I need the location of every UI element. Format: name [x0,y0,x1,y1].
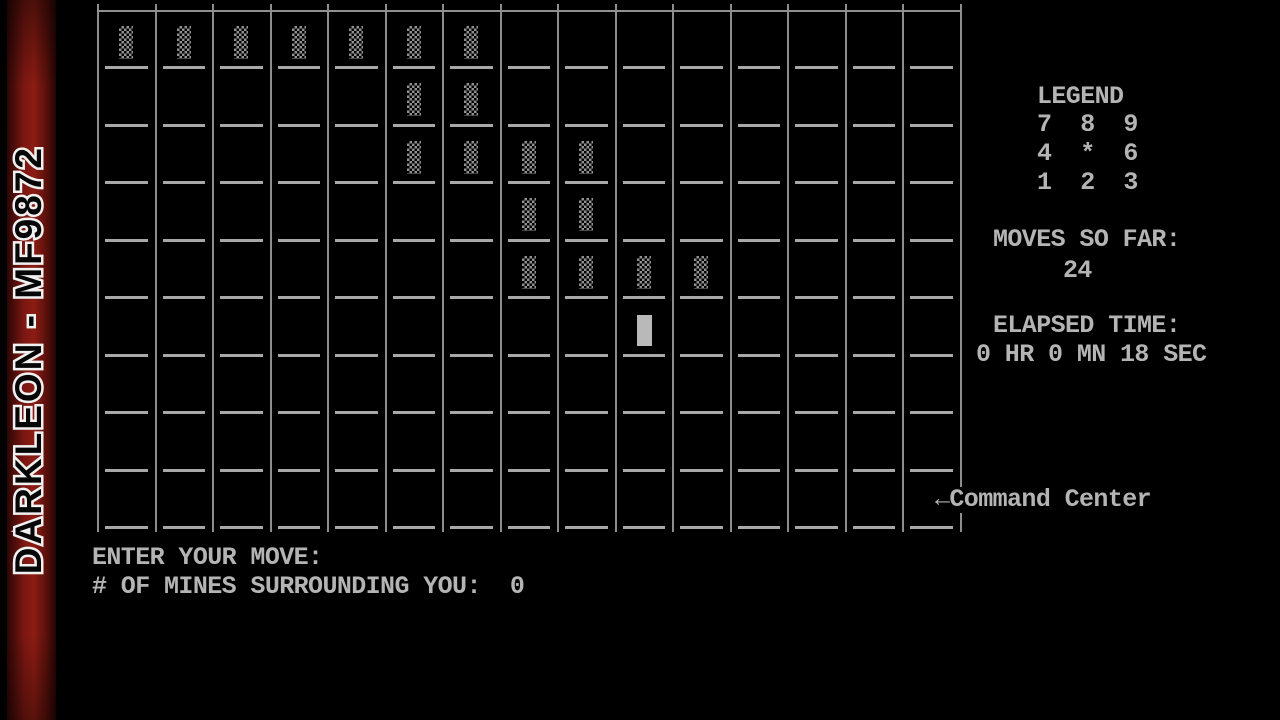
grid-line-dash [450,239,493,242]
wall-block [407,26,421,59]
legend-row-123: 1 2 3 [1037,170,1138,196]
grid-line-dash [163,411,206,414]
legend-row-789: 7 8 9 [1037,112,1138,138]
grid-line-top [97,10,962,12]
grid-line-vertical [500,4,502,532]
grid-line-dash [105,469,148,472]
watermark: DARKLEON - MF9872 [0,0,57,720]
grid-line-dash [795,66,838,69]
grid-line-dash [163,124,206,127]
grid-line-dash [450,296,493,299]
grid-line-dash [738,181,781,184]
grid-line-dash [910,469,953,472]
grid-line-dash [565,411,608,414]
mines-label: # OF MINES SURROUNDING YOU: [92,572,481,601]
wall-block [407,83,421,116]
grid-line-dash [795,526,838,529]
grid-line-dash [278,66,321,69]
grid-line-dash [853,124,896,127]
grid-line-dash [680,296,723,299]
grid-line-dash [163,526,206,529]
grid-line-dash [450,411,493,414]
grid-line-dash [565,124,608,127]
grid-line-dash [795,354,838,357]
grid-line-dash [450,354,493,357]
grid-line-dash [565,354,608,357]
wall-block [579,198,593,231]
wall-block [637,256,651,289]
grid-line-dash [163,181,206,184]
grid-line-dash [105,181,148,184]
grid-line-dash [278,411,321,414]
grid-line-dash [795,296,838,299]
grid-line-dash [278,181,321,184]
mines-value: 0 [510,572,524,601]
wall-block [464,141,478,174]
grid-line-dash [795,469,838,472]
wall-block [292,26,306,59]
grid-line-dash [508,66,551,69]
grid-line-vertical [442,4,444,532]
grid-line-dash [393,181,436,184]
wall-block [407,141,421,174]
grid-line-dash [163,354,206,357]
grid-line-dash [853,66,896,69]
grid-line-dash [623,239,666,242]
grid-line-dash [795,124,838,127]
wall-block [177,26,191,59]
grid-line-dash [910,66,953,69]
grid-line-dash [393,469,436,472]
grid-line-vertical [902,4,904,532]
grid-line-dash [450,469,493,472]
grid-line-vertical [385,4,387,532]
grid-line-dash [680,411,723,414]
grid-line-dash [105,66,148,69]
grid-line-dash [163,239,206,242]
legend-title: LEGEND [1037,84,1123,110]
grid-line-vertical [845,4,847,532]
grid-line-dash [853,239,896,242]
grid-line-dash [335,354,378,357]
grid-line-dash [738,239,781,242]
moves-value: 24 [1063,258,1092,284]
grid-line-dash [853,411,896,414]
grid-line-dash [508,411,551,414]
mines-readout: # OF MINES SURROUNDING YOU:0 [92,574,524,600]
grid-line-dash [623,526,666,529]
grid-line-dash [508,526,551,529]
grid-line-dash [220,124,263,127]
player-block [637,315,652,346]
grid-line-dash [105,239,148,242]
grid-line-dash [738,66,781,69]
wall-block [119,26,133,59]
grid-line-vertical [615,4,617,532]
grid-line-dash [738,469,781,472]
grid-line-dash [335,239,378,242]
grid-line-dash [565,66,608,69]
grid-line-dash [220,181,263,184]
legend-row-4s6: 4 * 6 [1037,141,1138,167]
elapsed-label: ELAPSED TIME: [993,313,1180,339]
grid-line-dash [623,354,666,357]
wall-block [522,141,536,174]
grid-line-dash [105,296,148,299]
grid-line-dash [853,181,896,184]
grid-line-dash [565,469,608,472]
grid-line-dash [623,296,666,299]
wall-block [522,256,536,289]
grid-line-dash [220,239,263,242]
grid-line-dash [278,124,321,127]
wall-block [579,141,593,174]
grid-line-dash [278,469,321,472]
grid-line-vertical [97,4,99,532]
grid-line-dash [623,411,666,414]
grid-line-vertical [212,4,214,532]
grid-line-vertical [557,4,559,532]
grid-line-dash [393,124,436,127]
grid-line-dash [450,124,493,127]
grid-line-vertical [672,4,674,532]
grid-line-dash [738,526,781,529]
game-screen: DARKLEON - MF9872 LEGEND 7 8 9 4 * 6 1 2… [0,0,1280,720]
wall-block [349,26,363,59]
command-center-label: ←Command Center [933,487,1153,513]
wall-block [234,26,248,59]
grid-line-dash [910,239,953,242]
grid-line-dash [335,124,378,127]
grid-line-dash [623,66,666,69]
wall-block [522,198,536,231]
grid-line-dash [910,411,953,414]
channel-strip: DARKLEON - MF9872 [0,0,57,720]
grid-line-dash [335,66,378,69]
grid-line-dash [278,296,321,299]
grid-line-dash [565,526,608,529]
grid-line-dash [910,526,953,529]
grid-line-dash [393,296,436,299]
grid-line-dash [220,469,263,472]
grid-line-dash [220,296,263,299]
grid-line-dash [795,411,838,414]
grid-line-dash [220,526,263,529]
grid-line-dash [335,181,378,184]
grid-line-dash [910,354,953,357]
grid-line-vertical [155,4,157,532]
grid-line-dash [335,411,378,414]
grid-line-dash [278,239,321,242]
grid-line-dash [910,181,953,184]
grid-line-dash [393,66,436,69]
grid-line-dash [795,239,838,242]
grid-line-dash [105,526,148,529]
grid-line-dash [450,181,493,184]
grid-line-dash [508,469,551,472]
grid-line-dash [680,239,723,242]
grid-line-vertical [960,4,962,532]
grid-line-dash [163,296,206,299]
grid-line-dash [910,124,953,127]
grid-line-dash [623,181,666,184]
grid-line-dash [565,239,608,242]
grid-line-dash [393,526,436,529]
grid-line-dash [910,296,953,299]
grid-line-dash [278,526,321,529]
grid-line-dash [508,124,551,127]
grid-line-dash [853,469,896,472]
grid-line-dash [680,354,723,357]
grid-line-dash [393,411,436,414]
grid-line-dash [508,354,551,357]
grid-line-dash [508,181,551,184]
grid-line-dash [680,181,723,184]
wall-block [579,256,593,289]
grid-line-dash [853,296,896,299]
grid-line-dash [220,411,263,414]
grid-line-dash [853,526,896,529]
grid-line-vertical [787,4,789,532]
grid-line-dash [335,296,378,299]
grid-line-dash [795,181,838,184]
grid-line-dash [738,124,781,127]
grid-line-dash [393,354,436,357]
grid-line-dash [163,469,206,472]
grid-line-dash [508,239,551,242]
elapsed-value: 0 HR 0 MN 18 SEC [976,342,1206,368]
grid-line-dash [335,469,378,472]
grid-line-vertical [327,4,329,532]
grid-line-dash [278,354,321,357]
grid-line-dash [738,411,781,414]
grid-line-dash [220,354,263,357]
grid-line-dash [680,526,723,529]
grid-line-dash [335,526,378,529]
watermark-text: DARKLEON - MF9872 [8,145,50,574]
grid-line-dash [853,354,896,357]
grid-line-dash [623,124,666,127]
wall-block [694,256,708,289]
grid-line-dash [105,411,148,414]
grid-line-dash [680,469,723,472]
wall-block [464,83,478,116]
grid-line-dash [680,124,723,127]
grid-line-dash [105,124,148,127]
grid-line-dash [623,469,666,472]
grid-line-dash [393,239,436,242]
grid-line-dash [450,66,493,69]
grid-line-dash [163,66,206,69]
grid-line-dash [220,66,263,69]
grid-line-dash [565,296,608,299]
grid-line-dash [450,526,493,529]
move-prompt[interactable]: ENTER YOUR MOVE: [92,545,322,571]
grid-line-dash [738,296,781,299]
grid-line-dash [738,354,781,357]
wall-block [464,26,478,59]
grid-line-dash [680,66,723,69]
grid-line-dash [565,181,608,184]
grid-line-vertical [270,4,272,532]
grid-line-dash [105,354,148,357]
grid-line-vertical [730,4,732,532]
moves-label: MOVES SO FAR: [993,227,1180,253]
grid-line-dash [508,296,551,299]
